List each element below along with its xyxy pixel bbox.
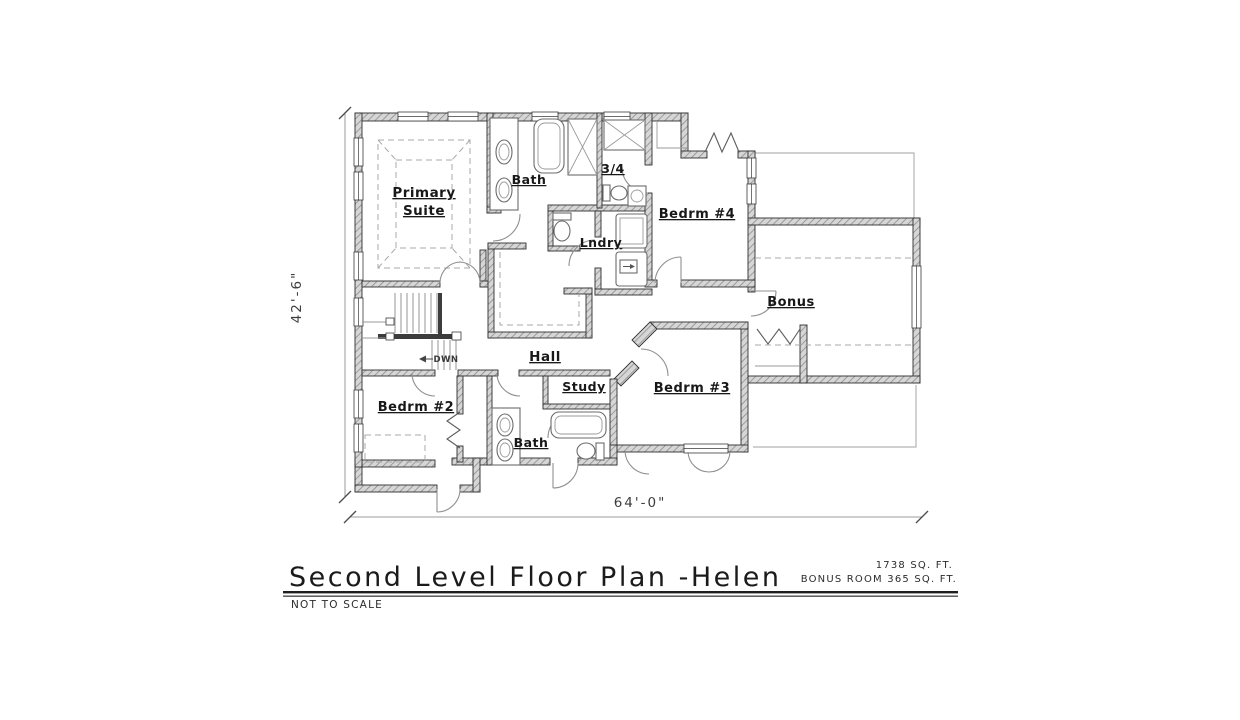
exterior-door-center bbox=[553, 463, 578, 488]
window-icon bbox=[747, 184, 756, 204]
room-label-primary-bath: Bath bbox=[512, 172, 547, 187]
room-label-bonus: Bonus bbox=[767, 295, 815, 310]
sink-icon bbox=[496, 178, 512, 202]
linen-closet-icon bbox=[604, 120, 645, 150]
exterior-door-left-step bbox=[437, 489, 460, 512]
bifold-door-bedroom4-closet bbox=[705, 133, 739, 152]
window-icon bbox=[912, 266, 921, 328]
window-icon bbox=[684, 444, 728, 453]
down-arrow-icon bbox=[419, 356, 433, 363]
sink-icon bbox=[497, 439, 513, 461]
bifold-door-bonus-closet bbox=[757, 329, 800, 344]
door-arc-bedroom2 bbox=[412, 373, 435, 396]
room-label-laundry: Lndry bbox=[580, 235, 623, 250]
floor-plan-document: Primary Suite Bath 3/4 Lndry Bedrm #4 Bo… bbox=[0, 0, 1240, 720]
sink-icon bbox=[496, 140, 512, 164]
room-label-three-quarter-bath: 3/4 bbox=[601, 161, 624, 176]
bathtub-icon bbox=[534, 119, 564, 173]
door-arc-bedroom3 bbox=[641, 349, 668, 376]
sink-icon bbox=[628, 186, 646, 206]
door-arc-primary-bath bbox=[493, 214, 520, 241]
double-door-primary-suite bbox=[440, 262, 480, 283]
door-bedroom4 bbox=[655, 257, 681, 283]
casement-arc bbox=[688, 452, 709, 472]
room-label-primary-suite-2: Suite bbox=[403, 203, 445, 219]
area-bonus-label: BONUS ROOM 365 SQ. FT. bbox=[801, 574, 957, 585]
dimension-width: 64'-0" bbox=[344, 495, 928, 523]
window-icon bbox=[354, 424, 363, 452]
plan-title: Second Level Floor Plan -Helen bbox=[289, 562, 781, 593]
title-rule-bottom bbox=[283, 596, 958, 597]
room-label-primary-suite-1: Primary bbox=[392, 185, 455, 201]
title-block: Second Level Floor Plan -Helen 1738 SQ. … bbox=[283, 560, 958, 611]
room-label-hall: Hall bbox=[529, 349, 561, 365]
toilet-icon bbox=[553, 213, 571, 241]
vanity-counter-primary bbox=[490, 118, 518, 210]
door-arc-bath2 bbox=[497, 373, 520, 396]
toilet-icon bbox=[577, 443, 604, 460]
primary-closet bbox=[488, 243, 592, 338]
window-icon bbox=[747, 158, 756, 178]
sink-icon bbox=[497, 414, 513, 436]
room-label-bedroom4: Bedrm #4 bbox=[659, 207, 735, 222]
window-icon bbox=[398, 112, 428, 121]
window-icon bbox=[354, 172, 363, 200]
room-label-bath2: Bath bbox=[514, 435, 549, 450]
floor-plan-svg: Primary Suite Bath 3/4 Lndry Bedrm #4 Bo… bbox=[0, 0, 1240, 720]
dryer-icon bbox=[616, 252, 647, 286]
dimension-depth-label: 42'-6" bbox=[289, 271, 305, 324]
stairs-down-label: DWN bbox=[433, 355, 458, 365]
window-icon bbox=[448, 112, 478, 121]
bathtub-icon bbox=[551, 412, 606, 438]
window-icon bbox=[354, 298, 363, 326]
bifold-door-bedroom2-closet bbox=[447, 412, 460, 448]
window-icon bbox=[354, 390, 363, 418]
scale-note: NOT TO SCALE bbox=[291, 599, 383, 611]
bedroom2-kneewall bbox=[365, 435, 425, 462]
title-rule-top bbox=[283, 591, 958, 593]
dimension-depth: 42'-6" bbox=[289, 107, 351, 503]
room-label-bedroom2: Bedrm #2 bbox=[378, 400, 454, 415]
room-label-study: Study bbox=[562, 379, 605, 394]
dimension-width-label: 64'-0" bbox=[614, 495, 667, 511]
room-label-bedroom3: Bedrm #3 bbox=[654, 381, 730, 396]
casement-arc bbox=[709, 452, 730, 472]
window-icon bbox=[354, 138, 363, 166]
window-icon bbox=[354, 252, 363, 280]
casement-arc bbox=[625, 452, 649, 474]
area-main-label: 1738 SQ. FT. bbox=[876, 560, 953, 571]
toilet-icon bbox=[603, 185, 627, 201]
shower-icon bbox=[568, 119, 597, 175]
